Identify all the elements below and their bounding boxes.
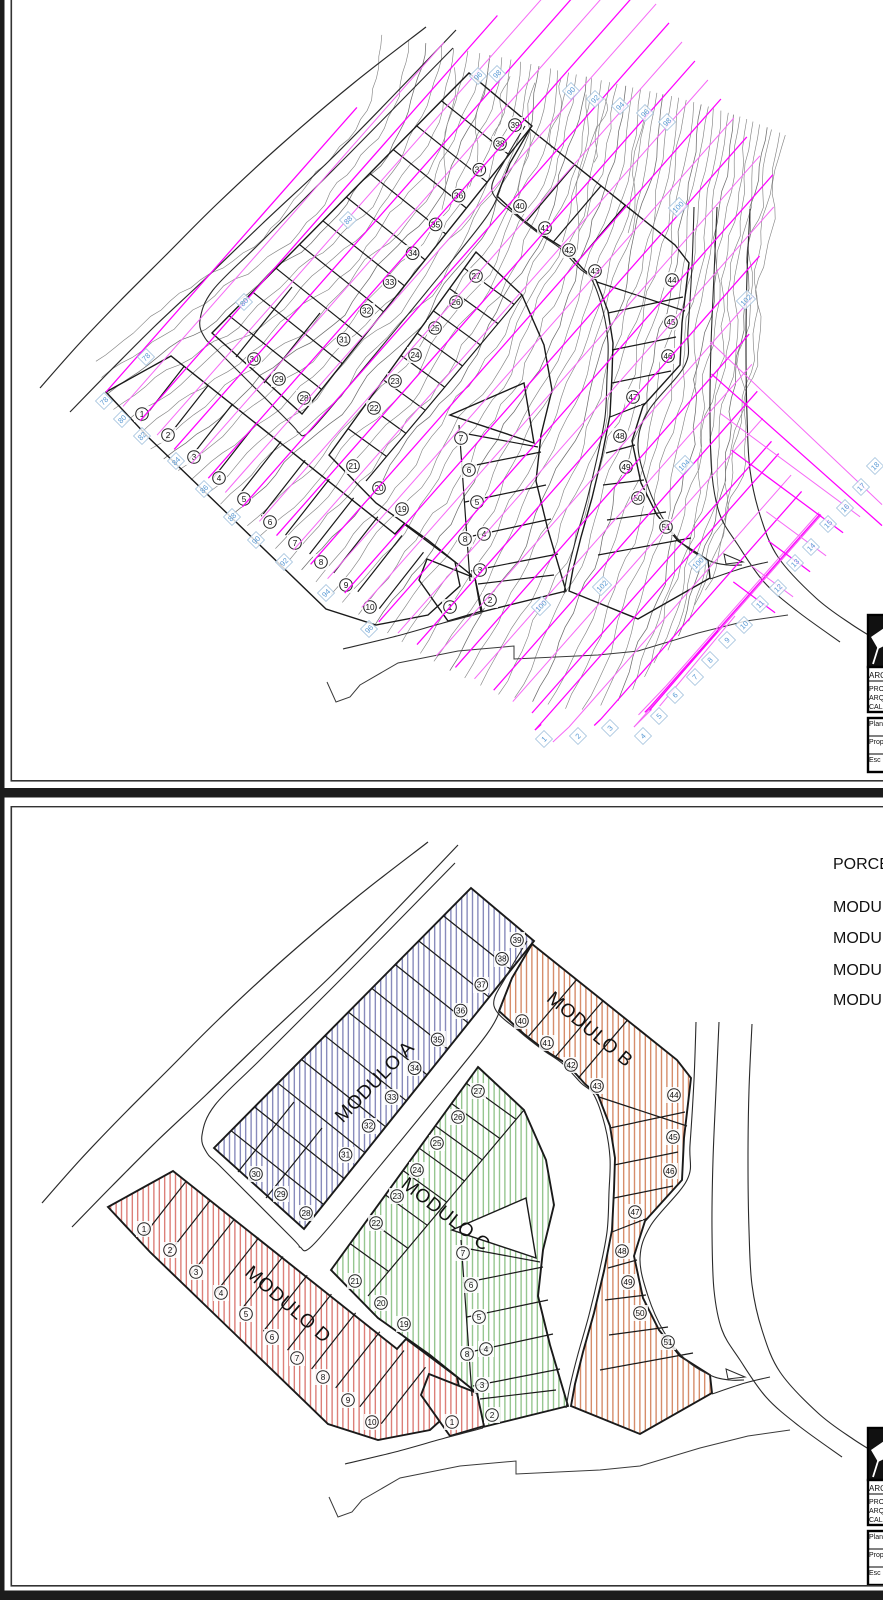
svg-text:Prop: Prop	[869, 1552, 883, 1559]
svg-text:7: 7	[461, 1249, 466, 1258]
svg-text:ARQ: ARQ	[869, 695, 883, 702]
svg-text:41: 41	[542, 1039, 552, 1048]
svg-text:28: 28	[301, 1209, 311, 1218]
svg-text:PRO: PRO	[869, 686, 883, 693]
svg-text:6: 6	[268, 518, 273, 527]
svg-text:21: 21	[350, 1277, 360, 1286]
svg-text:32: 32	[364, 1122, 374, 1131]
svg-text:4: 4	[219, 1289, 224, 1298]
svg-text:40: 40	[517, 1017, 527, 1026]
svg-text:33: 33	[387, 1093, 397, 1102]
svg-text:21: 21	[348, 462, 358, 471]
svg-text:MODULO A: MODULO A	[833, 899, 883, 916]
svg-text:44: 44	[669, 1091, 679, 1100]
svg-text:26: 26	[453, 1113, 463, 1122]
svg-text:36: 36	[456, 1007, 466, 1016]
svg-text:5: 5	[477, 1313, 482, 1322]
svg-text:48: 48	[615, 432, 625, 441]
svg-text:CAL: CAL	[869, 704, 883, 711]
svg-text:22: 22	[369, 404, 379, 413]
svg-text:9: 9	[346, 1396, 351, 1405]
svg-text:Plan: Plan	[869, 721, 883, 728]
svg-text:36: 36	[454, 192, 464, 201]
svg-text:2: 2	[490, 1411, 495, 1420]
svg-text:7: 7	[459, 434, 464, 443]
svg-text:44: 44	[667, 276, 677, 285]
svg-text:6: 6	[469, 1281, 474, 1290]
svg-text:1: 1	[142, 1225, 147, 1234]
svg-text:28: 28	[299, 394, 309, 403]
svg-text:1: 1	[450, 1418, 455, 1427]
svg-text:5: 5	[475, 498, 480, 507]
svg-text:38: 38	[497, 955, 507, 964]
svg-text:45: 45	[668, 1133, 678, 1142]
svg-text:10: 10	[365, 603, 375, 612]
svg-text:51: 51	[663, 1338, 673, 1347]
svg-text:46: 46	[665, 1167, 675, 1176]
svg-text:27: 27	[473, 1087, 483, 1096]
svg-text:34: 34	[410, 1064, 420, 1073]
svg-text:48: 48	[617, 1247, 627, 1256]
svg-text:2: 2	[168, 1246, 173, 1255]
svg-text:Prop: Prop	[869, 739, 883, 746]
svg-text:47: 47	[628, 393, 638, 402]
svg-text:3: 3	[480, 1381, 485, 1390]
svg-text:ARQ: ARQ	[869, 1508, 883, 1515]
svg-text:20: 20	[374, 484, 384, 493]
svg-text:ARQ: ARQ	[869, 1484, 883, 1493]
svg-text:8: 8	[463, 535, 468, 544]
svg-text:3: 3	[194, 1268, 199, 1277]
svg-text:7: 7	[295, 1354, 300, 1363]
svg-text:42: 42	[564, 246, 574, 255]
svg-text:19: 19	[399, 1320, 409, 1329]
svg-text:MODULO D: MODULO D	[833, 992, 883, 1009]
svg-text:29: 29	[274, 375, 284, 384]
svg-text:50: 50	[633, 494, 643, 503]
svg-text:5: 5	[244, 1310, 249, 1319]
svg-text:39: 39	[512, 936, 522, 945]
svg-text:42: 42	[566, 1061, 576, 1070]
svg-text:Esc: Esc	[869, 757, 881, 764]
svg-text:40: 40	[515, 202, 525, 211]
svg-text:31: 31	[339, 336, 349, 345]
svg-text:31: 31	[341, 1151, 351, 1160]
svg-text:24: 24	[410, 351, 420, 360]
svg-text:23: 23	[392, 1192, 402, 1201]
svg-text:8: 8	[465, 1350, 470, 1359]
svg-text:32: 32	[362, 307, 372, 316]
svg-text:Esc: Esc	[869, 1570, 881, 1577]
svg-text:23: 23	[390, 377, 400, 386]
svg-text:20: 20	[376, 1299, 386, 1308]
svg-text:10: 10	[367, 1418, 377, 1427]
svg-text:24: 24	[412, 1166, 422, 1175]
svg-text:6: 6	[467, 466, 472, 475]
svg-text:43: 43	[592, 1082, 602, 1091]
svg-text:30: 30	[251, 1170, 261, 1179]
svg-text:4: 4	[217, 474, 222, 483]
svg-text:50: 50	[635, 1309, 645, 1318]
svg-text:PORCENTAJE: PORCENTAJE	[833, 856, 883, 873]
svg-text:33: 33	[385, 278, 395, 287]
svg-text:PRO: PRO	[869, 1499, 883, 1506]
svg-text:29: 29	[276, 1190, 286, 1199]
svg-text:4: 4	[484, 1345, 489, 1354]
svg-text:8: 8	[321, 1373, 326, 1382]
svg-text:8: 8	[319, 558, 324, 567]
svg-text:19: 19	[397, 505, 407, 514]
svg-text:MODULO C: MODULO C	[833, 962, 883, 979]
svg-text:6: 6	[270, 1333, 275, 1342]
svg-text:ARQ: ARQ	[869, 671, 883, 680]
svg-text:2: 2	[166, 431, 171, 440]
svg-text:22: 22	[371, 1219, 381, 1228]
svg-text:37: 37	[477, 981, 487, 990]
svg-text:25: 25	[432, 1139, 442, 1148]
svg-text:Plan: Plan	[869, 1534, 883, 1541]
svg-text:35: 35	[433, 1035, 443, 1044]
svg-text:CAL: CAL	[869, 1517, 883, 1524]
svg-text:49: 49	[623, 1278, 633, 1287]
svg-text:MODULO B: MODULO B	[833, 930, 883, 947]
svg-text:47: 47	[630, 1208, 640, 1217]
